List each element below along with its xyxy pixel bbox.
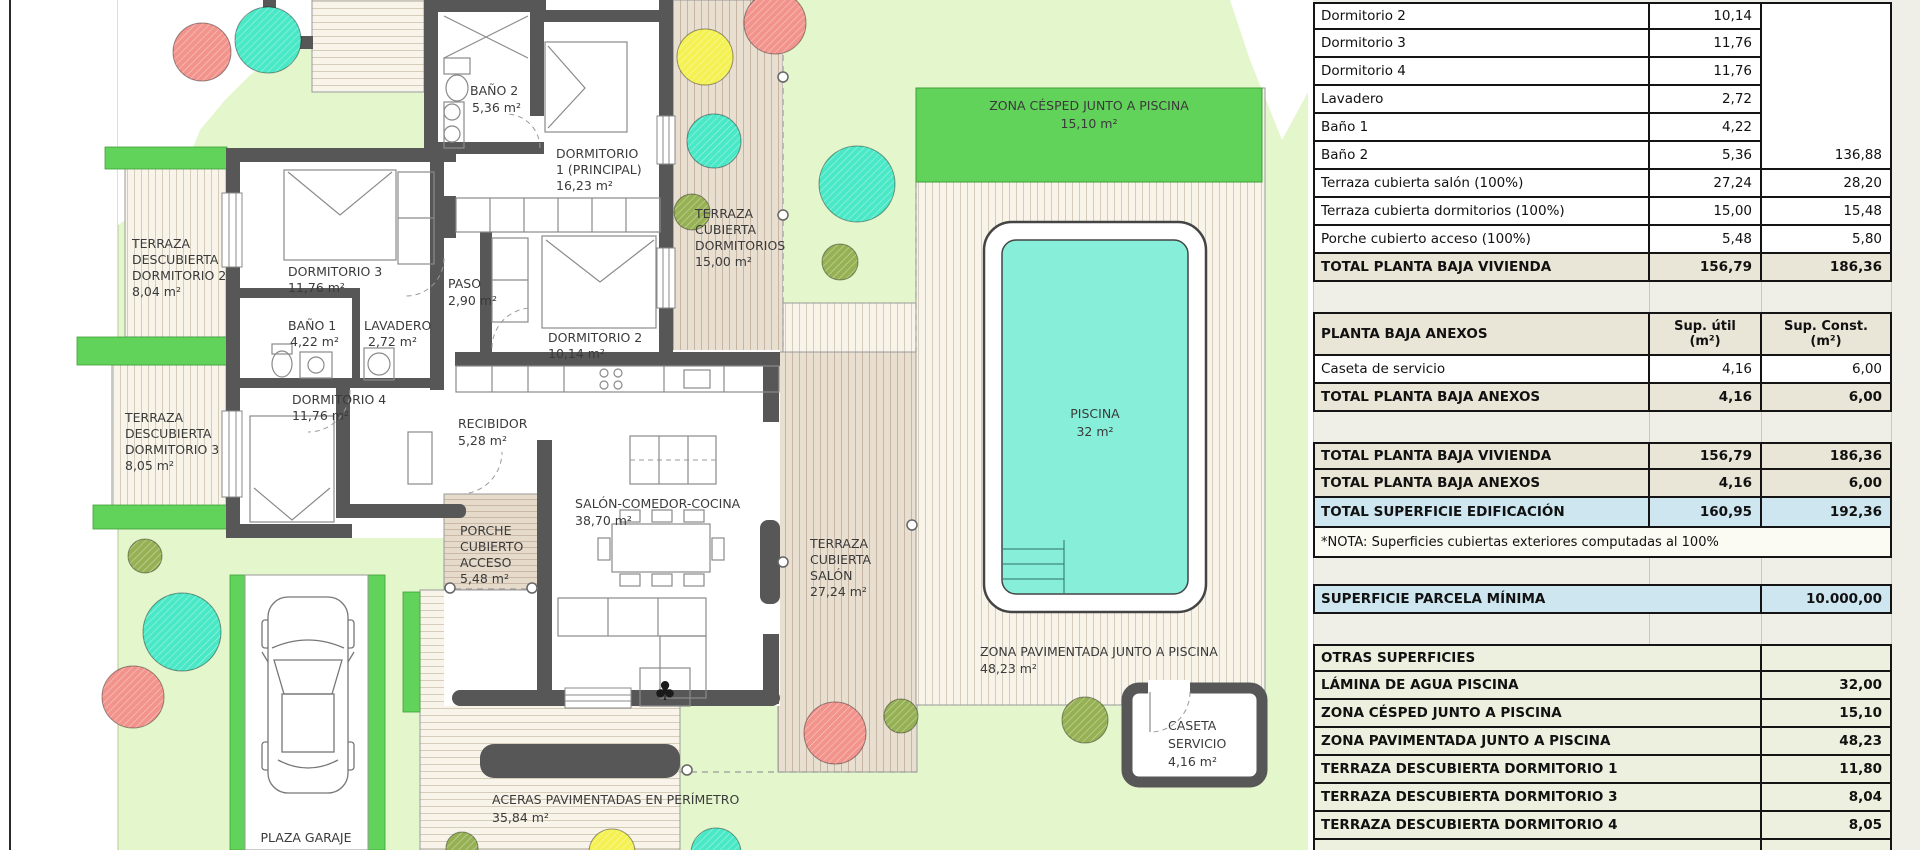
planter [480, 744, 680, 778]
svg-text:5,28 m²: 5,28 m² [458, 433, 507, 448]
svg-text:CUBIERTA: CUBIERTA [695, 222, 756, 237]
tree [1062, 697, 1108, 743]
svg-text:1 (PRINCIPAL): 1 (PRINCIPAL) [556, 162, 642, 177]
table-row: TERRAZA DESCUBIERTA DORMITORIO 1 11,80 [1313, 756, 1894, 784]
label-terraza-cubierta-dormitorios: TERRAZA [694, 206, 754, 221]
table-row-total-anexos: TOTAL PLANTA BAJA ANEXOS 4,16 6,00 [1313, 384, 1894, 412]
label-lavadero: LAVADERO [364, 318, 432, 333]
svg-text:35,84 m²: 35,84 m² [492, 810, 549, 825]
label-dormitorio-1: DORMITORIO [556, 146, 638, 161]
tree [804, 702, 866, 764]
table-gap [1313, 282, 1894, 312]
table-row-parcela-minima: SUPERFICIE PARCELA MÍNIMA 10.000,00 [1313, 584, 1894, 614]
label-terraza-descubierta-dorm2: TERRAZA [131, 236, 191, 251]
areas-table-panel: Dormitorio 2 10,14 Dormitorio 3 11,76 Do… [1313, 0, 1920, 850]
areas-table: Dormitorio 2 10,14 Dormitorio 3 11,76 Do… [1313, 2, 1894, 850]
svg-text:32 m²: 32 m² [1076, 424, 1113, 439]
tree [822, 244, 858, 280]
table-row: Caseta de servicio 4,16 6,00 [1313, 356, 1894, 384]
svg-text:2,90 m²: 2,90 m² [448, 293, 497, 308]
tree [687, 114, 741, 168]
table-row: Porche cubierto acceso (100%) 5,48 5,80 [1313, 226, 1894, 254]
table-row: Baño 1 4,22 [1313, 114, 1894, 142]
svg-text:DORMITORIOS: DORMITORIOS [695, 238, 785, 253]
tree [143, 593, 221, 671]
table-row: LÁMINA DE AGUA PISCINA 32,00 [1313, 672, 1894, 700]
label-salon: SALÓN-COMEDOR-COCINA [575, 496, 741, 511]
table-row: Dormitorio 4 11,76 [1313, 58, 1894, 86]
label-terraza-cubierta-salon: TERRAZA [809, 536, 869, 551]
label-dormitorio-2: DORMITORIO 2 [548, 330, 642, 345]
table-gap [1313, 614, 1894, 644]
deck-pocket [783, 303, 917, 352]
label-plaza-garaje: PLAZA GARAJE [261, 830, 352, 845]
svg-text:48,23 m²: 48,23 m² [980, 661, 1037, 676]
car [262, 597, 354, 793]
label-recibidor: RECIBIDOR [458, 416, 528, 431]
svg-text:4,22 m²: 4,22 m² [290, 334, 339, 349]
tree [102, 666, 164, 728]
col-header-sup-util: Sup. útil (m²) [1650, 312, 1762, 356]
table-row-total-vivienda: TOTAL PLANTA BAJA VIVIENDA 156,79 186,36 [1313, 254, 1894, 282]
floor-plan-drawing: ♣ [0, 0, 1316, 850]
table-row: TERRAZA DESCUBIERTA DORMITORIO 3 8,04 [1313, 784, 1894, 812]
tree [884, 699, 918, 733]
svg-text:DESCUBIERTA: DESCUBIERTA [125, 426, 212, 441]
svg-text:5,48 m²: 5,48 m² [460, 571, 509, 586]
svg-text:2,72 m²: 2,72 m² [368, 334, 417, 349]
svg-text:CUBIERTO: CUBIERTO [460, 539, 523, 554]
svg-text:15,00 m²: 15,00 m² [695, 254, 752, 269]
table-row-partial [1313, 840, 1894, 850]
tree [677, 29, 733, 85]
label-dormitorio-4: DORMITORIO 4 [292, 392, 386, 407]
label-zona-pavimentada: ZONA PAVIMENTADA JUNTO A PISCINA [980, 644, 1218, 659]
table-row: ZONA PAVIMENTADA JUNTO A PISCINA 48,23 [1313, 728, 1894, 756]
label-banyo-1: BAÑO 1 [288, 318, 336, 333]
col-header-sup-const: Sup. Const. (m²) [1762, 312, 1892, 356]
svg-text:10,14 m²: 10,14 m² [548, 346, 605, 361]
tree [128, 539, 162, 573]
table-row: Baño 2 5,36 136,88 [1313, 142, 1894, 170]
svg-text:DORMITORIO 2: DORMITORIO 2 [132, 268, 226, 283]
label-terraza-descubierta-dorm3: TERRAZA [124, 410, 184, 425]
svg-text:8,04 m²: 8,04 m² [132, 284, 181, 299]
site-plan-sheet: ♣ [0, 0, 1920, 850]
svg-text:CUBIERTA: CUBIERTA [810, 552, 871, 567]
table-row-summary: TOTAL PLANTA BAJA VIVIENDA 156,79 186,36 [1313, 442, 1894, 470]
svg-text:SALÓN: SALÓN [810, 568, 852, 583]
table-header-anexos: PLANTA BAJA ANEXOS Sup. útil (m²) Sup. C… [1313, 312, 1894, 356]
label-caseta-servicio: CASETA [1168, 718, 1217, 733]
label-paso: PASO [448, 276, 481, 291]
table-gap [1313, 412, 1894, 442]
table-row: Dormitorio 3 11,76 [1313, 30, 1894, 58]
svg-text:SERVICIO: SERVICIO [1168, 736, 1226, 751]
label-aceras: ACERAS PAVIMENTADAS EN PERÍMETRO [492, 792, 739, 807]
svg-text:5,36 m²: 5,36 m² [472, 100, 521, 115]
tree [819, 146, 895, 222]
row-label: Dormitorio 2 [1313, 2, 1650, 30]
row-const [1762, 2, 1892, 30]
svg-text:DORMITORIO 3: DORMITORIO 3 [125, 442, 219, 457]
svg-text:27,24 m²: 27,24 m² [810, 584, 867, 599]
left-margin [0, 0, 118, 850]
table-row: Dormitorio 2 10,14 [1313, 2, 1894, 30]
table-row: TERRAZA DESCUBIERTA DORMITORIO 4 8,05 [1313, 812, 1894, 840]
nota-text: *NOTA: Superficies cubiertas exteriores … [1313, 528, 1892, 558]
svg-text:ACCESO: ACCESO [460, 555, 512, 570]
svg-text:38,70 m²: 38,70 m² [575, 513, 632, 528]
label-banyo-2: BAÑO 2 [470, 83, 518, 98]
label-zona-cesped: ZONA CÉSPED JUNTO A PISCINA [989, 98, 1189, 113]
top-deck [312, 0, 424, 92]
svg-text:8,05 m²: 8,05 m² [125, 458, 174, 473]
label-piscina: PISCINA [1070, 406, 1120, 421]
tree [235, 7, 301, 73]
label-dormitorio-3: DORMITORIO 3 [288, 264, 382, 279]
svg-text:11,76 m²: 11,76 m² [292, 408, 349, 423]
table-row: Terraza cubierta dormitorios (100%) 15,0… [1313, 198, 1894, 226]
table-gap [1313, 558, 1894, 584]
row-util: 10,14 [1650, 2, 1762, 30]
svg-text:16,23 m²: 16,23 m² [556, 178, 613, 193]
table-row: Lavadero 2,72 [1313, 86, 1894, 114]
table-row-total-edificacion: TOTAL SUPERFICIE EDIFICACIÓN 160,95 192,… [1313, 498, 1894, 528]
table-row-summary: TOTAL PLANTA BAJA ANEXOS 4,16 6,00 [1313, 470, 1894, 498]
table-row: ZONA CÉSPED JUNTO A PISCINA 15,10 [1313, 700, 1894, 728]
svg-text:15,10 m²: 15,10 m² [1061, 116, 1118, 131]
tree [173, 23, 231, 81]
table-row: Terraza cubierta salón (100%) 27,24 28,2… [1313, 170, 1894, 198]
label-porche: PORCHE [460, 523, 512, 538]
svg-text:DESCUBIERTA: DESCUBIERTA [132, 252, 219, 267]
svg-text:4,16 m²: 4,16 m² [1168, 754, 1217, 769]
table-header-otras: OTRAS SUPERFICIES [1313, 644, 1894, 672]
plant-icon: ♣ [653, 677, 676, 707]
table-nota-row: *NOTA: Superficies cubiertas exteriores … [1313, 528, 1894, 558]
svg-text:11,76 m²: 11,76 m² [288, 280, 345, 295]
